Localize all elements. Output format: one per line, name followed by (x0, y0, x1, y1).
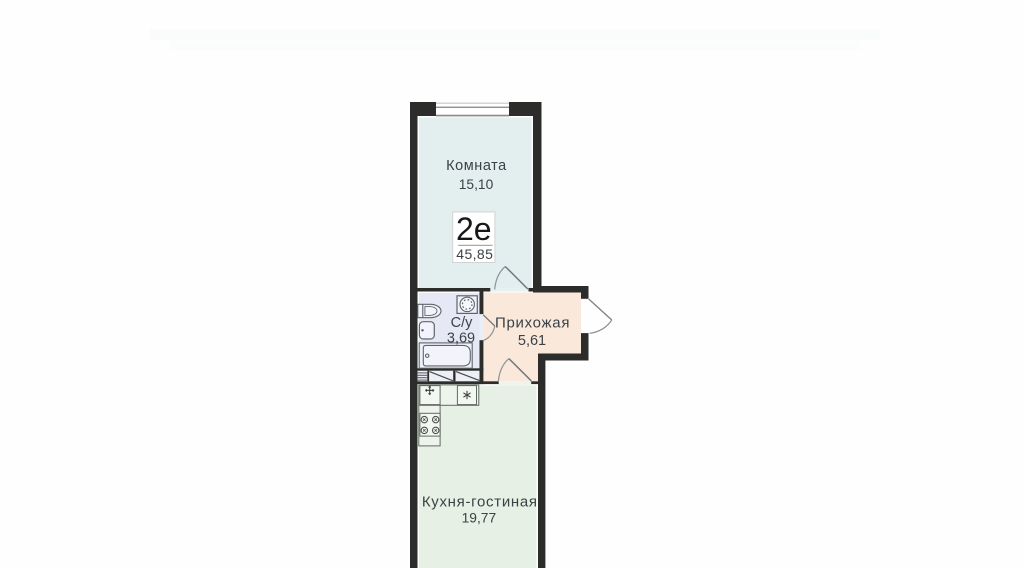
svg-text:19,77: 19,77 (462, 511, 497, 526)
svg-text:45,85: 45,85 (456, 246, 493, 262)
svg-text:2е: 2е (456, 211, 492, 247)
svg-text:3,69: 3,69 (447, 331, 475, 347)
svg-text:С/у: С/у (451, 315, 474, 331)
svg-text:15,10: 15,10 (459, 177, 494, 192)
svg-text:5,61: 5,61 (518, 333, 546, 349)
svg-text:Кухня-гостиная: Кухня-гостиная (422, 494, 538, 511)
svg-text:Комната: Комната (446, 158, 507, 174)
svg-text:Прихожая: Прихожая (495, 315, 570, 332)
